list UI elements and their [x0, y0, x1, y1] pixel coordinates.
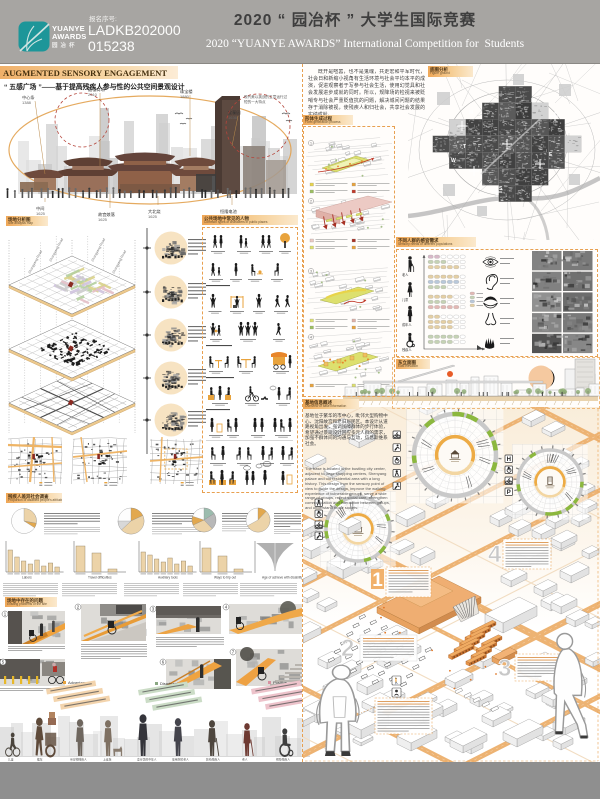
svg-text:带宠物残疾人: 带宠物残疾人 — [70, 758, 87, 762]
svg-text:现代美以挑战的主意运行过: 现代美以挑战的主意运行过 — [244, 94, 288, 99]
svg-text:Zhongyang Road: Zhongyang Road — [111, 250, 127, 275]
svg-text:1625: 1625 — [98, 217, 108, 221]
svg-text:老人: 老人 — [242, 758, 248, 762]
svg-text:使用拐杖老人: 使用拐杖老人 — [172, 758, 189, 762]
svg-text:Labors: Labors — [22, 576, 32, 580]
svg-text:2010: 2010 — [88, 92, 98, 97]
svg-text:推车: 推车 — [37, 758, 43, 762]
svg-text:短的一大特点: 短的一大特点 — [244, 99, 266, 104]
svg-text:Age of achieve with disability: Age of achieve with disability — [262, 576, 302, 580]
svg-text:上班族: 上班族 — [103, 758, 112, 762]
svg-text:1880: 1880 — [180, 94, 190, 99]
svg-text:1388: 1388 — [22, 100, 32, 105]
svg-text:拿行李的中年人: 拿行李的中年人 — [137, 758, 157, 762]
svg-text:儿童: 儿童 — [8, 758, 14, 762]
svg-text:M: M — [469, 110, 473, 116]
svg-text:4: 4 — [488, 541, 502, 568]
svg-text:1: 1 — [372, 570, 383, 591]
svg-text:视障残疾人: 视障残疾人 — [276, 758, 290, 762]
svg-text:3: 3 — [498, 655, 511, 682]
svg-text:Travel difficulties: Travel difficulties — [88, 576, 112, 580]
svg-text:H: H — [507, 457, 511, 463]
svg-text:Ways to trip out: Ways to trip out — [214, 576, 236, 580]
svg-text:Auxiliary tools: Auxiliary tools — [158, 576, 178, 580]
svg-text:P: P — [507, 490, 511, 496]
svg-text:🚶: 🚶 — [393, 677, 400, 685]
svg-text:N: N — [531, 98, 535, 104]
svg-text:T: T — [463, 144, 466, 150]
svg-text:轮椅残疾人: 轮椅残疾人 — [206, 758, 220, 762]
svg-text:Zhongyang Road: Zhongyang Road — [90, 238, 106, 263]
svg-text:1636: 1636 — [228, 115, 238, 120]
svg-text:W: W — [451, 158, 456, 164]
svg-text:1625: 1625 — [148, 214, 158, 219]
svg-text:2: 2 — [341, 635, 354, 662]
